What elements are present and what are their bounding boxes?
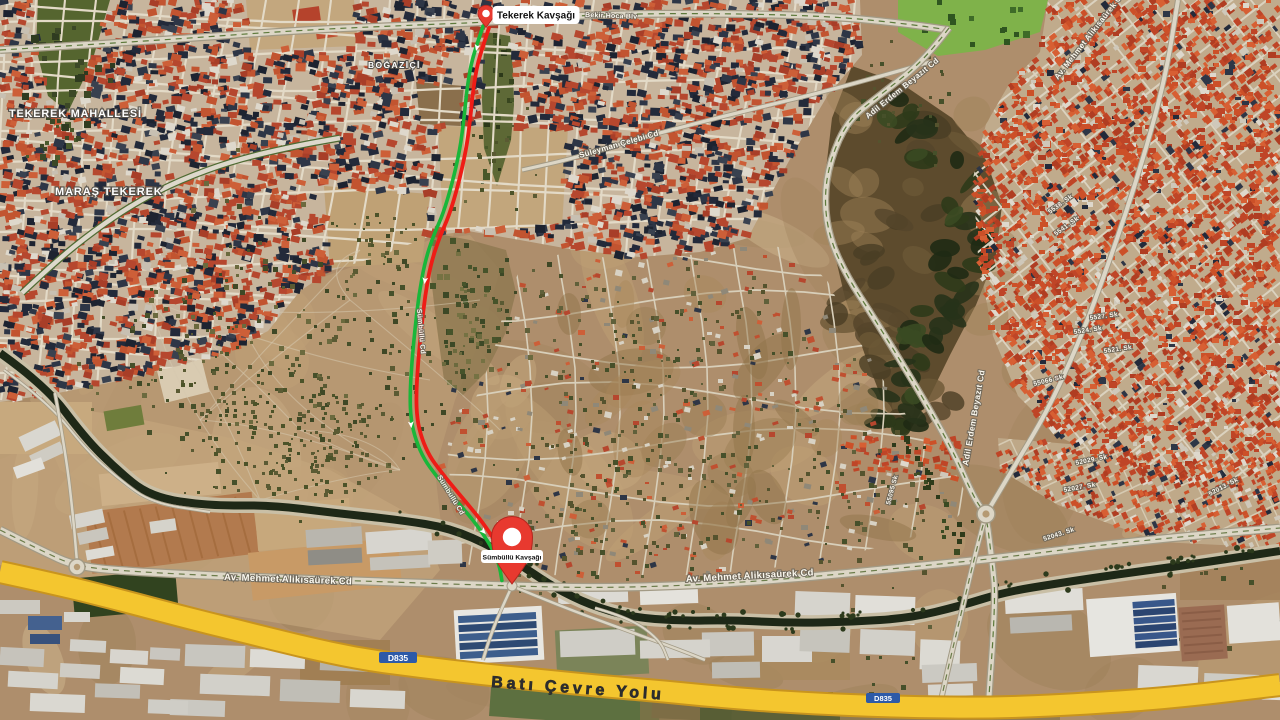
svg-text:MARAŞ TEKEREK: MARAŞ TEKEREK — [55, 186, 163, 198]
svg-text:BOĞAZİÇİ: BOĞAZİÇİ — [368, 59, 421, 70]
svg-text:D835: D835 — [388, 653, 409, 663]
svg-text:D835: D835 — [874, 694, 892, 703]
svg-text:TEKEREK MAHALLESİ: TEKEREK MAHALLESİ — [9, 107, 142, 120]
svg-text:Sümbüllü Kavşağı: Sümbüllü Kavşağı — [483, 555, 542, 562]
svg-text:Tekerek Kavşağı: Tekerek Kavşağı — [497, 11, 575, 22]
